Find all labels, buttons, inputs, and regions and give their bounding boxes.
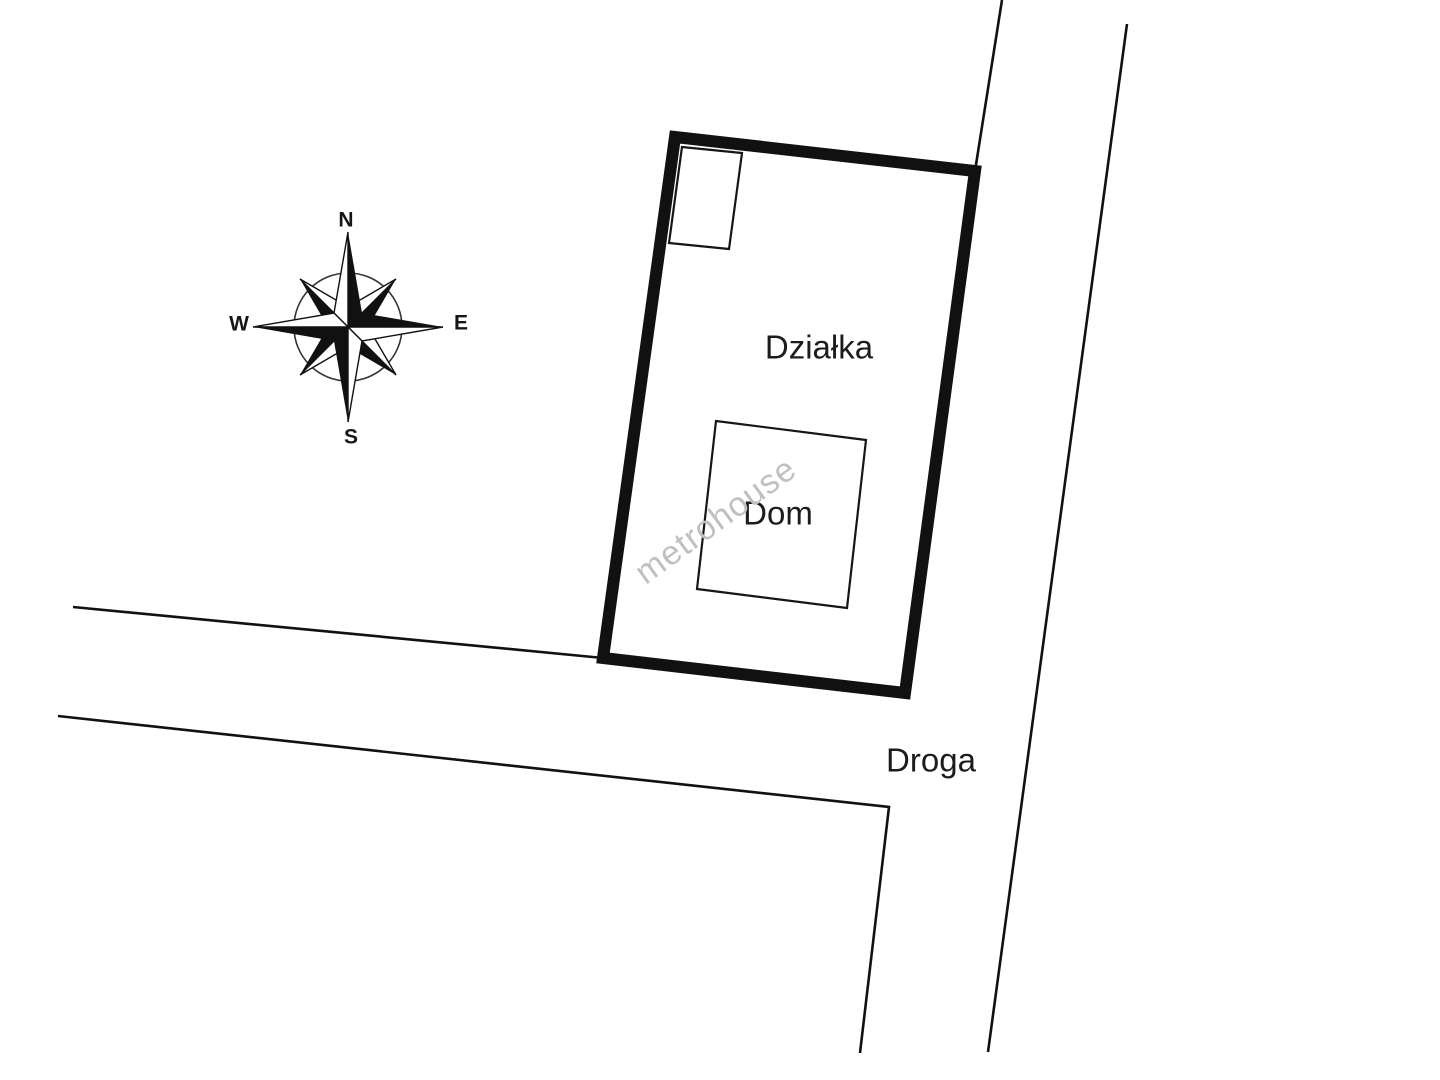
compass-east-label: E bbox=[454, 313, 468, 334]
road-left-edge-top bbox=[975, 0, 1002, 171]
outbuilding-outline bbox=[669, 147, 742, 249]
compass-west-label: W bbox=[229, 314, 249, 335]
road-lower-edge bbox=[58, 716, 889, 1053]
parcel-boundary bbox=[603, 137, 975, 693]
site-plan: N S E W Działka Dom Droga metrohouse bbox=[0, 0, 1440, 1080]
road-right-edge bbox=[988, 24, 1127, 1052]
parcel-label: Działka bbox=[765, 331, 873, 364]
road-label: Droga bbox=[886, 744, 976, 777]
compass-north-label: N bbox=[338, 210, 353, 231]
compass-cardinal-points bbox=[253, 232, 443, 422]
compass-south-label: S bbox=[344, 427, 358, 448]
compass-rose-icon bbox=[253, 232, 443, 422]
road-upper-edge bbox=[73, 607, 603, 658]
